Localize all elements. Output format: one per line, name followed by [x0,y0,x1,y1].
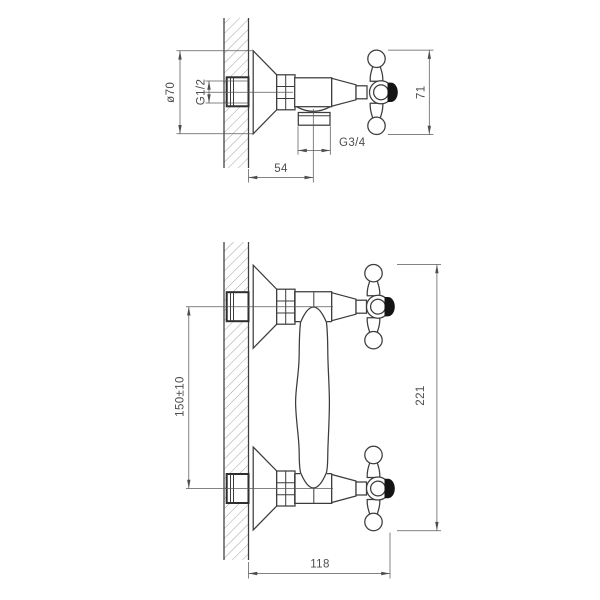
bottom-view: 150±10 221 118 [175,242,441,579]
dim-label-handle-height: 71 [416,86,428,100]
wall-section-bottom [224,242,249,560]
dim-label-projection: 118 [310,559,330,571]
wall-hatch [224,242,249,560]
outlet-g34 [298,113,330,126]
dim-label-inlet-spacing: 150±10 [175,376,187,417]
inlet-nipple [227,77,249,106]
drawing-canvas: ø70 G1/2 71 G3/4 54 [0,0,600,600]
handle-stem-upper [356,300,367,313]
body-tube [296,307,330,488]
dim-label-outlet-thread: G3/4 [339,137,366,149]
handle-cone-upper [332,293,356,321]
cross-handle-upper [365,265,395,349]
faucet-technical-drawing: ø70 G1/2 71 G3/4 54 [0,0,600,600]
cross-handle [368,50,398,134]
dim-label-wall-to-outlet: 54 [274,163,288,175]
handle-cone-lower [332,475,356,503]
cross-handle-lower [365,446,395,530]
handle-stem-lower [356,482,367,495]
top-view: ø70 G1/2 71 G3/4 54 [165,18,433,183]
handle-cone [332,78,356,106]
handle-stem [356,86,367,99]
dim-label-overall-height: 221 [415,385,427,405]
dim-label-escutcheon-diameter: ø70 [165,82,177,103]
